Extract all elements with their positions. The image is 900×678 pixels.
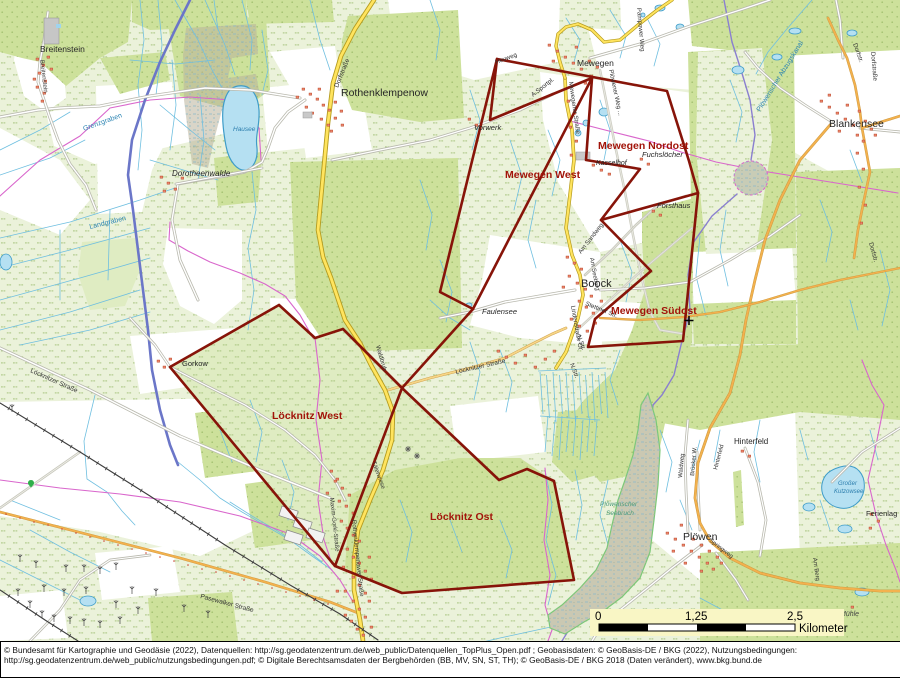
svg-text:Mewegen West: Mewegen West [505, 169, 581, 181]
svg-text:1,25: 1,25 [685, 611, 707, 623]
svg-text:0: 0 [595, 611, 601, 623]
svg-text:Kilometer: Kilometer [799, 623, 848, 635]
svg-text:Mewegen: Mewegen [577, 58, 614, 68]
svg-text:Faulensee: Faulensee [482, 307, 517, 316]
svg-text:Kutzowsee: Kutzowsee [834, 489, 864, 495]
svg-text:Löcknitz Ost: Löcknitz Ost [430, 511, 494, 523]
svg-text:Hinterfeld: Hinterfeld [734, 437, 768, 446]
svg-text:Ferienlag: Ferienlag [866, 509, 897, 518]
svg-text:Vorwerk: Vorwerk [474, 123, 502, 132]
svg-text:Seebruch: Seebruch [606, 510, 634, 517]
svg-text:2,5: 2,5 [787, 611, 803, 623]
svg-text:Hausee: Hausee [233, 126, 256, 133]
svg-text:Großer: Großer [838, 481, 858, 487]
svg-text:Dorotheenwalde: Dorotheenwalde [172, 169, 231, 178]
svg-text:Rothenklempenow: Rothenklempenow [341, 87, 428, 99]
svg-text:Forsthaus: Forsthaus [657, 201, 691, 210]
svg-text:Kasselhof: Kasselhof [596, 160, 628, 167]
svg-text:Gorkow: Gorkow [182, 359, 208, 368]
svg-text:Plöwenscher: Plöwenscher [600, 501, 638, 508]
svg-text:Breitenstein: Breitenstein [40, 44, 85, 54]
svg-text:Löcknitz West: Löcknitz West [272, 410, 343, 422]
svg-text:Mewegen Südost: Mewegen Südost [611, 305, 697, 317]
svg-text:Blankensee: Blankensee [829, 118, 884, 130]
svg-text:Mewegen Nordost: Mewegen Nordost [598, 140, 689, 152]
